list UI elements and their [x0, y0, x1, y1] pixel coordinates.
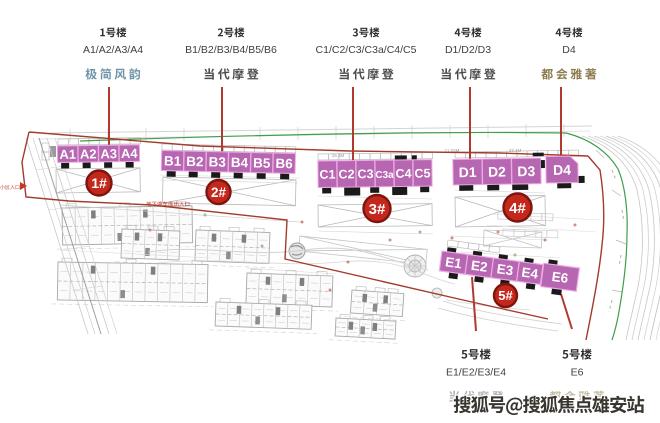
svg-text:C4: C4 — [395, 167, 411, 181]
svg-text:E6: E6 — [551, 269, 570, 286]
svg-text:3#: 3# — [369, 201, 386, 218]
svg-text:B1/B2/B3/B4/B5/B6: B1/B2/B3/B4/B5/B6 — [185, 44, 277, 56]
svg-text:D3: D3 — [517, 163, 535, 179]
svg-text:A2: A2 — [80, 146, 97, 161]
svg-text:C2: C2 — [338, 167, 354, 181]
svg-text:15.3M: 15.3M — [332, 153, 345, 158]
svg-text:E1: E1 — [444, 254, 463, 271]
svg-text:4#: 4# — [509, 200, 526, 217]
svg-text:B2: B2 — [186, 154, 204, 169]
svg-text:B5: B5 — [253, 155, 271, 170]
svg-text:C5: C5 — [414, 166, 430, 180]
svg-text:B3: B3 — [208, 154, 226, 169]
svg-text:23.1M: 23.1M — [509, 148, 522, 153]
svg-text:E1/E2/E3/E4: E1/E2/E3/E4 — [446, 367, 506, 379]
svg-text:D2: D2 — [488, 163, 506, 179]
svg-text:C3a: C3a — [375, 170, 394, 181]
svg-text:B6: B6 — [275, 156, 293, 171]
svg-text:C1: C1 — [319, 168, 335, 182]
svg-text:2#: 2# — [211, 185, 227, 200]
svg-text:E3: E3 — [496, 261, 515, 278]
svg-text:E6: E6 — [571, 367, 584, 379]
svg-text:A4: A4 — [121, 146, 139, 161]
svg-text:C1/C2/C3/C3a/C4/C5: C1/C2/C3/C3a/C4/C5 — [316, 44, 417, 56]
svg-text:C3: C3 — [357, 167, 373, 181]
svg-text:D1: D1 — [459, 164, 477, 180]
svg-text:5#: 5# — [498, 288, 513, 303]
svg-text:D4: D4 — [562, 44, 576, 56]
svg-text:1#: 1# — [91, 175, 107, 191]
svg-text:D1/D2/D3: D1/D2/D3 — [445, 44, 491, 56]
svg-text:B4: B4 — [231, 155, 249, 170]
svg-text:B1: B1 — [164, 153, 182, 168]
svg-text:A1: A1 — [59, 147, 76, 162]
svg-text:A1/A2/A3/A4: A1/A2/A3/A4 — [83, 44, 143, 56]
svg-text:E4: E4 — [521, 265, 540, 282]
svg-text:D4: D4 — [553, 162, 571, 178]
svg-text:A3: A3 — [100, 146, 117, 161]
svg-text:E2: E2 — [470, 258, 488, 275]
